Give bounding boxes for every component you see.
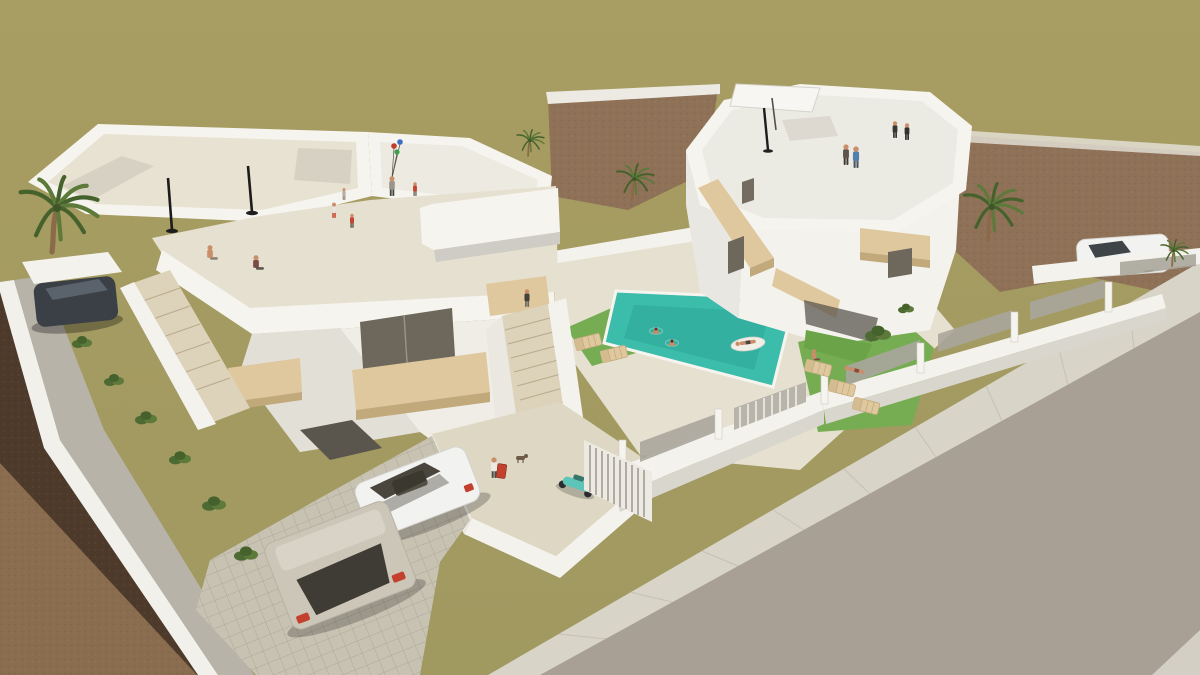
rv-roof-floor [702, 94, 958, 220]
fence-post-2 [715, 409, 722, 439]
balloon-blue [397, 139, 403, 145]
balloon-green [394, 149, 399, 154]
balloon-red [391, 143, 397, 149]
fence-post-4 [917, 343, 924, 373]
fence-post-5 [1011, 312, 1018, 342]
red-suitcase [496, 464, 507, 479]
lv-roof-gravel-b [294, 148, 352, 184]
rv-window-2 [742, 178, 754, 204]
render-viewport [0, 0, 1200, 675]
rv-window-3 [888, 248, 912, 278]
fence-post-3 [821, 374, 828, 404]
rv-window-1 [728, 236, 744, 274]
fence-post-6 [1105, 282, 1112, 312]
roof-umbrella-base [763, 149, 773, 153]
